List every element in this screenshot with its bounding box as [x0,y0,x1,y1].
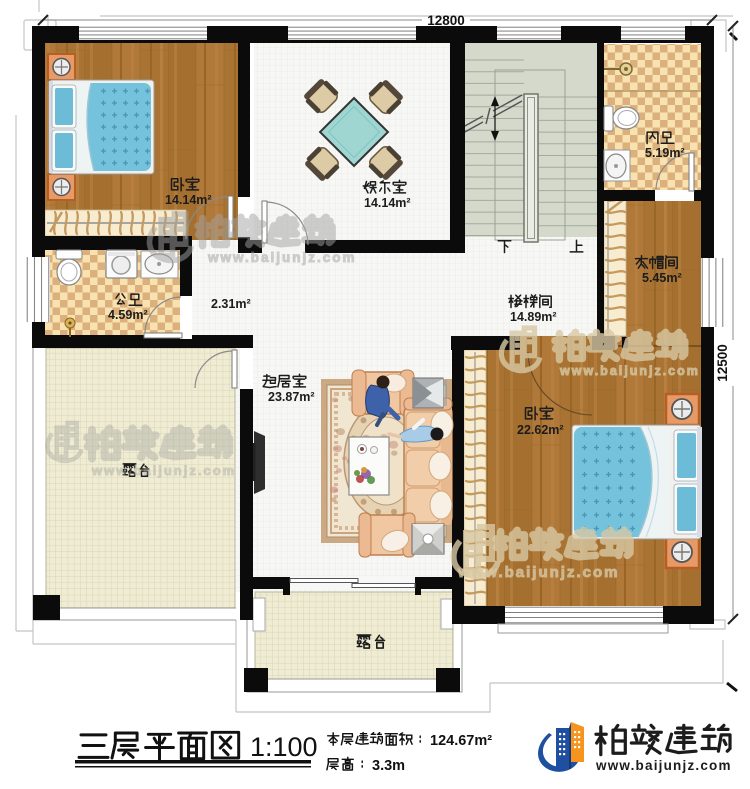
svg-text:22.62m²: 22.62m² [517,423,564,437]
svg-text:12800: 12800 [427,13,465,28]
svg-text:23.87m²: 23.87m² [268,390,315,404]
svg-text:12500: 12500 [715,344,730,382]
svg-text:1:100: 1:100 [250,732,318,762]
svg-text:www.baijunjz.com: www.baijunjz.com [207,250,357,265]
svg-text:2.31m²: 2.31m² [211,297,251,311]
svg-text:4.59m²: 4.59m² [108,308,148,322]
svg-text:124.67m²: 124.67m² [430,733,492,749]
svg-text:www.baijunjz.com: www.baijunjz.com [559,364,700,378]
svg-text:14.89m²: 14.89m² [510,310,557,324]
svg-text:5.45m²: 5.45m² [642,271,682,285]
svg-text:www.baijunjz.com: www.baijunjz.com [91,463,236,478]
svg-text:www.baijunjz.com: www.baijunjz.com [457,564,619,581]
svg-text:14.14m²: 14.14m² [364,196,411,210]
svg-text:14.14m²: 14.14m² [165,193,212,207]
svg-text:www.baijunjz.com: www.baijunjz.com [595,758,732,773]
svg-text:3.3m: 3.3m [372,758,405,774]
svg-text:5.19m²: 5.19m² [645,146,685,160]
